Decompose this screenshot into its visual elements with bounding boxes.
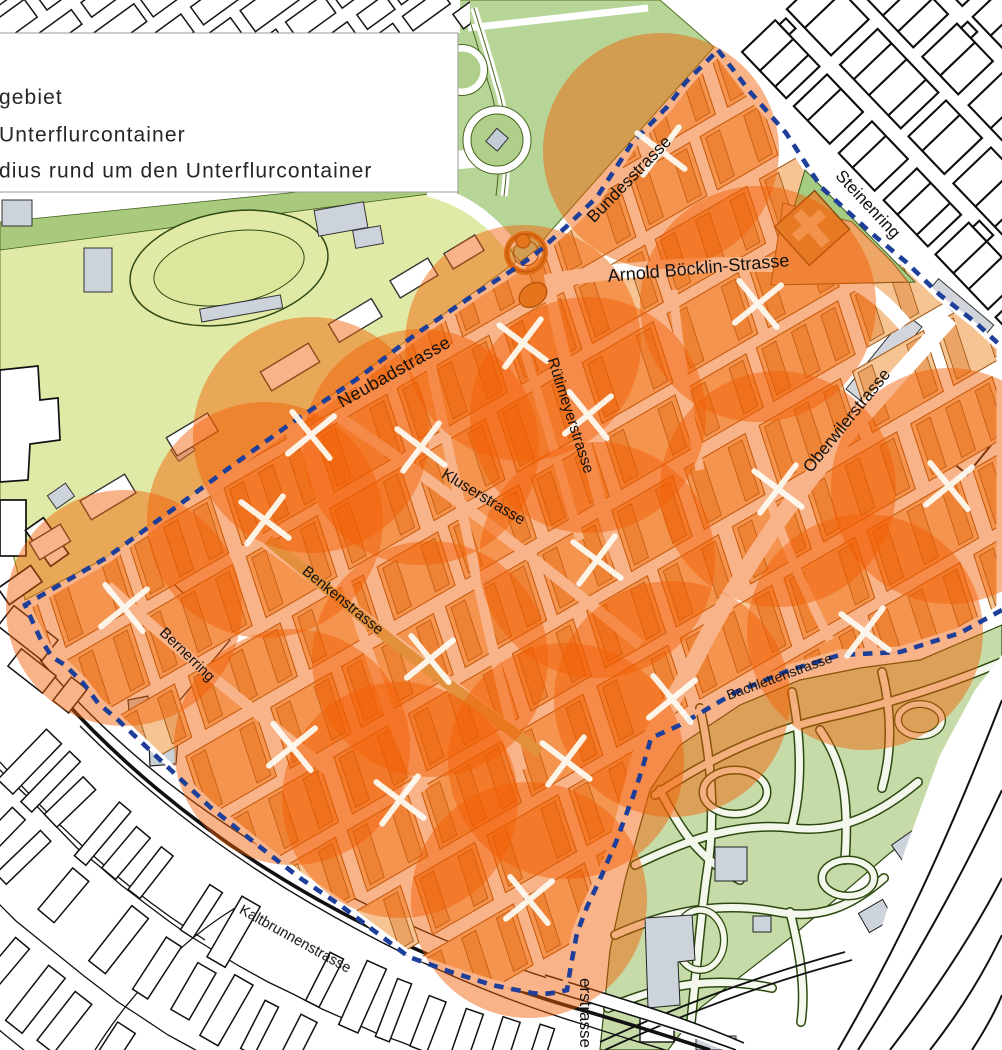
svg-text:erstrasse: erstrasse	[576, 978, 595, 1048]
svg-text:dius rund um den Unterflurcont: dius rund um den Unterflurcontainer	[0, 160, 373, 183]
svg-text:Unterflurcontainer: Unterflurcontainer	[0, 124, 186, 147]
svg-text:gebiet: gebiet	[0, 86, 63, 109]
